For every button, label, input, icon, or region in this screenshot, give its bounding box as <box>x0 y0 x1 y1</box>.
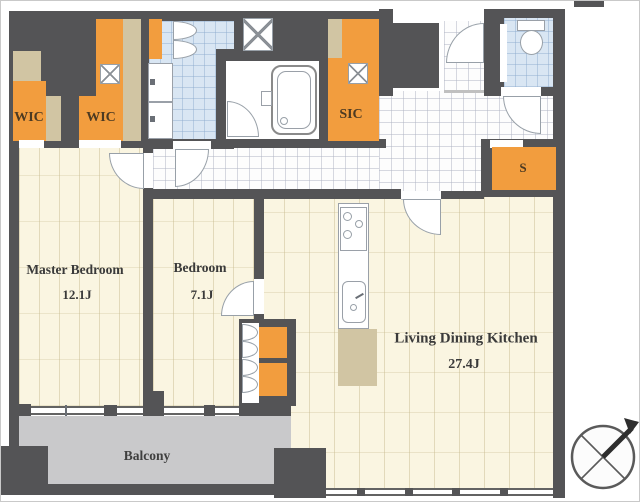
window-mullion <box>357 488 365 496</box>
bedroom-closet-upper <box>259 327 287 358</box>
toilet-room-door-strip <box>500 24 507 82</box>
wic-left-door <box>19 140 44 148</box>
master-bedroom-window <box>117 406 143 415</box>
stove-burner <box>343 212 352 221</box>
sic-shelf <box>328 19 342 58</box>
compass-icon <box>569 411 640 499</box>
kitchen-faucet <box>350 304 357 311</box>
vanity-faucet <box>150 116 155 122</box>
sic-label: SIC <box>339 107 362 123</box>
wic-right-column <box>96 19 123 96</box>
wic-left-counter <box>46 96 61 141</box>
wall-corridor-bottom <box>143 189 401 199</box>
stove-burner <box>355 220 363 228</box>
washing-machine-pan-icon <box>348 63 368 84</box>
master-bedroom-window <box>31 406 104 415</box>
wall-window-seg-1 <box>9 404 31 416</box>
window-mullion <box>452 488 460 496</box>
wall-window-seg-2 <box>104 405 117 416</box>
wic-right-counter <box>123 19 141 141</box>
window-mullion <box>405 488 413 496</box>
bedroom-closet-lower <box>259 363 287 396</box>
window-mullion <box>500 488 508 496</box>
wall-entry-block <box>391 23 439 88</box>
wic-right-door <box>79 140 121 148</box>
bedroom-window <box>164 406 204 415</box>
wic-left-shelf <box>13 51 41 81</box>
kitchen-sink-icon <box>342 281 366 323</box>
washing-machine-pan-icon <box>243 18 273 51</box>
toilet-door-gap <box>501 87 541 96</box>
entrance-threshold <box>444 90 484 93</box>
wall-window-seg-4 <box>239 401 291 416</box>
wic-left-label: WIC <box>14 110 44 126</box>
washing-machine-pan-icon <box>100 64 120 84</box>
ldk-label: Living Dining Kitchen <box>394 331 537 348</box>
washroom-door-gap <box>173 141 211 149</box>
window-mullion <box>65 405 67 416</box>
master-bedroom-label: Master Bedroom <box>26 262 123 278</box>
kitchen-base-cabinet <box>338 329 377 386</box>
toilet-bowl <box>520 30 543 55</box>
storage-label: S <box>519 160 526 176</box>
wall-wic-divider <box>59 79 79 141</box>
balcony-wall-bottom <box>41 484 286 495</box>
bedroom-label: Bedroom <box>174 260 227 276</box>
vanity-faucet <box>150 79 155 85</box>
wall-window-seg-3 <box>204 405 215 416</box>
bedroom-door-gap <box>254 279 264 314</box>
master-bedroom-door-gap <box>143 153 153 188</box>
ldk-area: 27.4J <box>448 357 480 373</box>
washroom-cabinet <box>149 19 162 59</box>
wic-right-label: WIC <box>86 110 116 126</box>
exterior-stub-top-right <box>574 1 604 7</box>
stove-burner <box>343 230 352 239</box>
bedroom-area: 7.1J <box>191 287 214 303</box>
balcony-corner-right <box>274 448 326 498</box>
wall-ldk-top-right <box>441 191 484 199</box>
wall-master-bedroom-right-foot <box>143 391 164 416</box>
master-bedroom-area: 12.1J <box>62 287 91 303</box>
balcony-label: Balcony <box>124 448 171 464</box>
bathtub-drain <box>280 117 288 125</box>
bath-control-panel <box>261 91 272 106</box>
bedroom-window <box>215 406 239 415</box>
floor-plan: WIC WIC SIC S Master Bedroom 12.1J Bedro… <box>0 0 640 502</box>
